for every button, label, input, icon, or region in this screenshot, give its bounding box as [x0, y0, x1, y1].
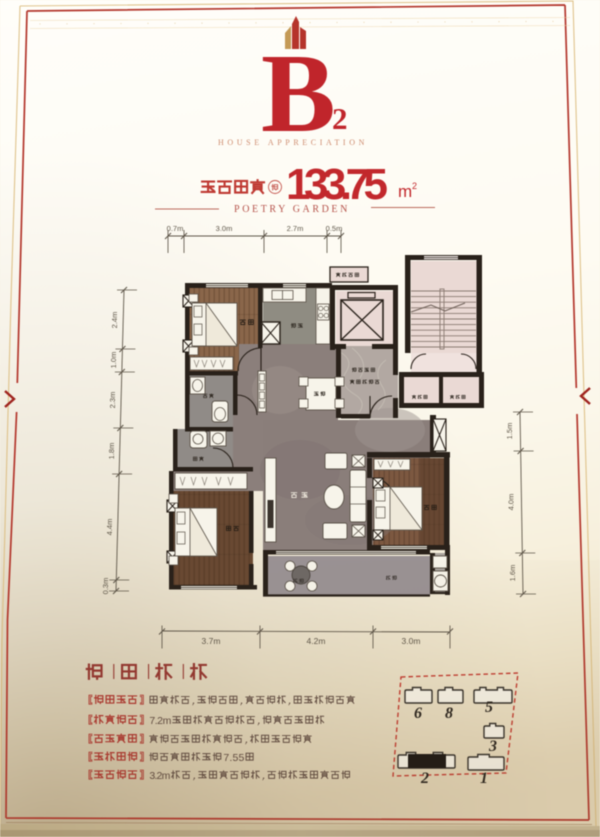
svg-text:3.0m: 3.0m	[216, 224, 233, 233]
svg-text:4.4m: 4.4m	[105, 519, 114, 536]
svg-text:POETRY GARDEN: POETRY GARDEN	[234, 204, 350, 215]
svg-text:1.5m: 1.5m	[505, 423, 514, 440]
svg-text:m: m	[398, 182, 412, 201]
svg-text:2: 2	[332, 101, 348, 136]
svg-text:HOUSE APPRECIATION: HOUSE APPRECIATION	[218, 138, 368, 147]
svg-text:1.8m: 1.8m	[107, 443, 116, 460]
svg-text:2.3m: 2.3m	[108, 392, 117, 409]
svg-text:133.75: 133.75	[286, 160, 388, 209]
svg-text:1.0m: 1.0m	[109, 352, 118, 369]
svg-text:0.7m: 0.7m	[167, 224, 184, 233]
svg-text:2.7m: 2.7m	[287, 224, 304, 233]
svg-text:2.4m: 2.4m	[110, 312, 119, 329]
svg-text:4.0m: 4.0m	[507, 494, 516, 511]
svg-text:2: 2	[412, 181, 417, 191]
svg-text:0.5m: 0.5m	[326, 224, 343, 233]
